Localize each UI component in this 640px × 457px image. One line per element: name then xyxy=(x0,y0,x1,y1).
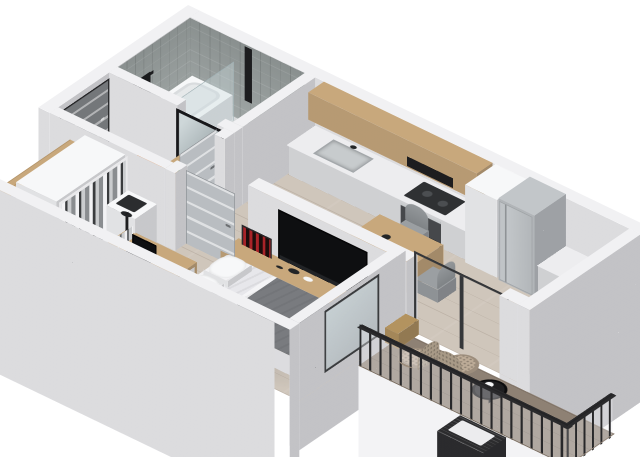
kitchen-tall-unit-side xyxy=(465,185,497,278)
floorplan-screenshot xyxy=(0,0,640,457)
bathroom-door-jamb-side xyxy=(234,127,242,211)
outer-wall-southwest-side xyxy=(290,323,300,457)
fridge-front xyxy=(499,201,532,296)
hall-east-wall-stub-south-side xyxy=(175,165,187,251)
shower-column xyxy=(245,46,252,104)
hall-east-wall-stub-south-side xyxy=(165,168,175,251)
